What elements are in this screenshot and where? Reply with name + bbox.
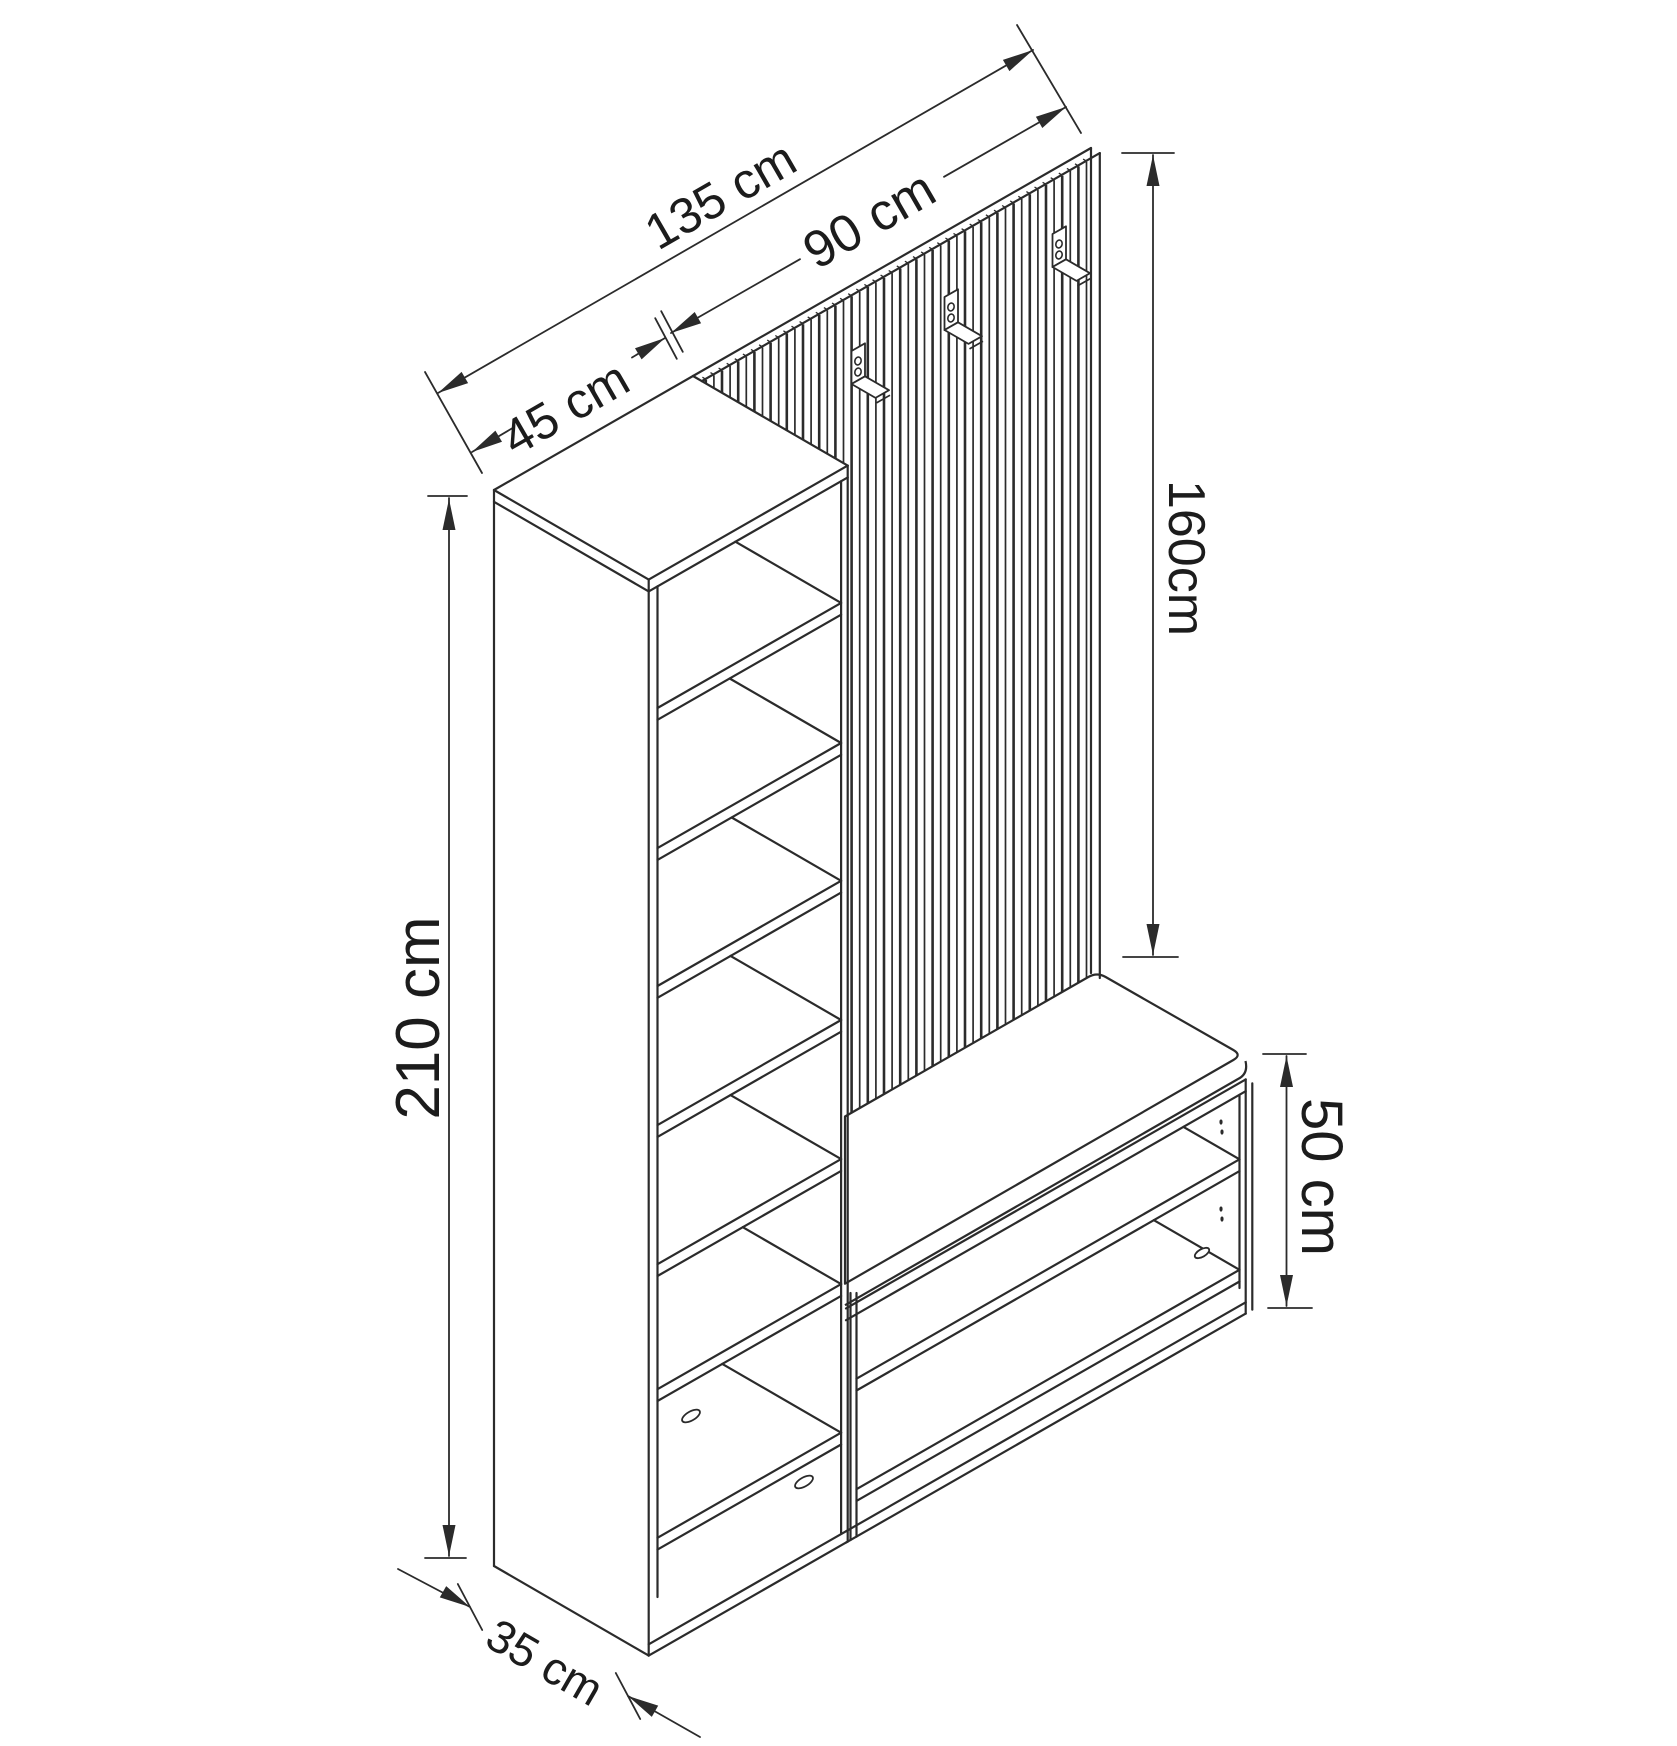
svg-text:50 cm: 50 cm (1289, 1098, 1354, 1256)
svg-text:160cm: 160cm (1157, 480, 1215, 636)
svg-text:210 cm: 210 cm (384, 916, 453, 1119)
